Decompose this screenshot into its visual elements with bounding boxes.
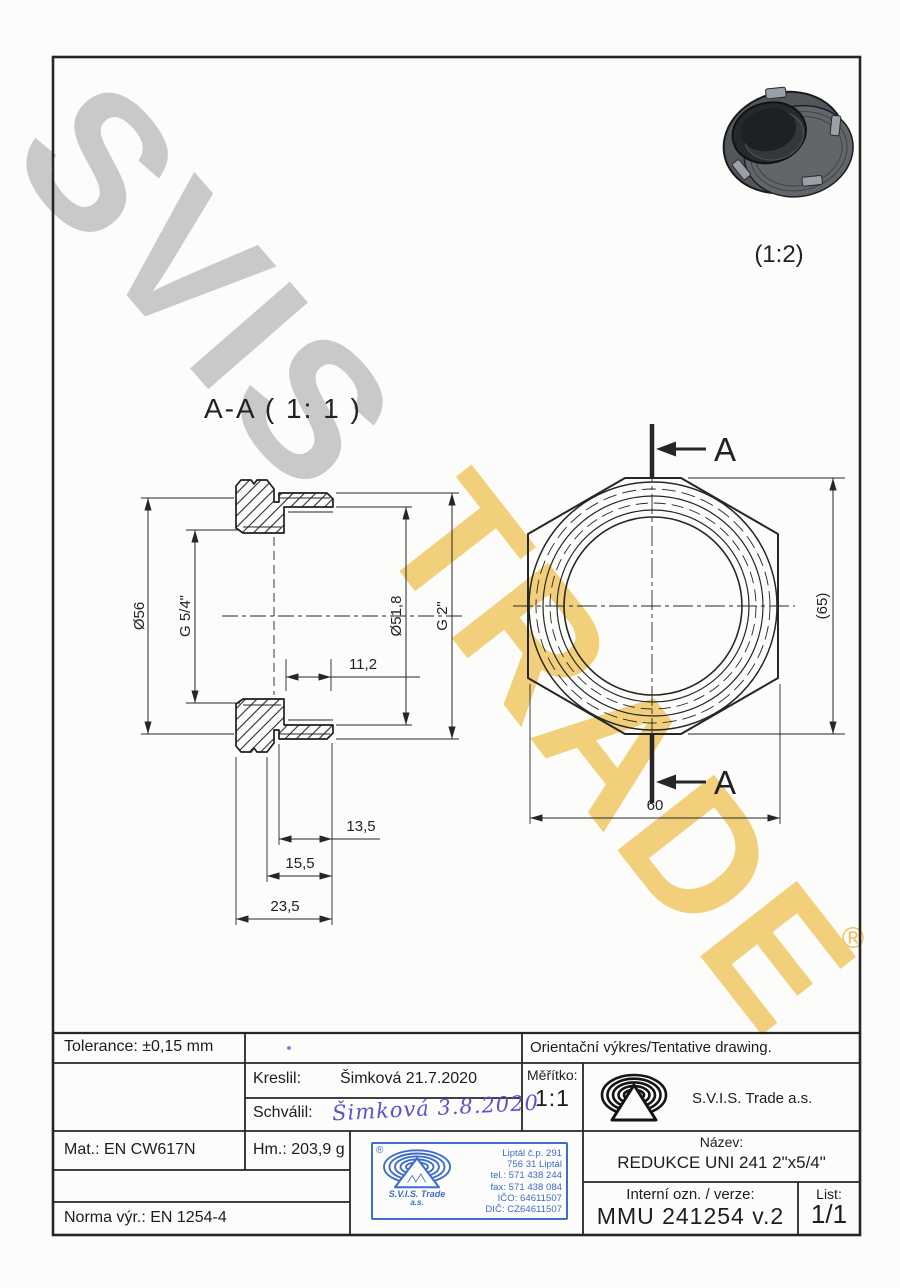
cut-arrow-top	[656, 442, 706, 457]
dim-step1: 13,5	[346, 818, 375, 835]
company-logo	[602, 1075, 666, 1120]
material-field: Mat.: EN CW617N	[64, 1141, 196, 1159]
dim-bore-diameter: Ø51,8	[388, 596, 405, 637]
stamp-address-line: IČO: 64611507	[461, 1193, 562, 1204]
company-stamp: ® S.V.I.S. Trade a.s. Liptál č.p. 291 75…	[371, 1142, 568, 1220]
photo-scale-note: (1:2)	[754, 241, 803, 268]
interni-label: Interní ozn. / verze:	[583, 1186, 798, 1203]
tolerance-field: Tolerance: ±0,15 mm	[64, 1038, 213, 1056]
sheet-frame	[53, 57, 860, 1235]
dim-thread-length: 11,2	[349, 656, 377, 673]
pen-dot-mark	[287, 1046, 291, 1050]
stamp-address-line: DIČ: CZ64611507	[461, 1204, 562, 1215]
tentative-drawing-note: Orientační výkres/Tentative drawing.	[530, 1039, 772, 1056]
section-title: A-A ( 1: 1 )	[204, 393, 362, 424]
dim-across-flats: 60	[647, 797, 664, 814]
part-photo	[711, 72, 863, 213]
dim-outer-diameter: Ø56	[131, 602, 148, 630]
stamp-company-line2: a.s.	[410, 1199, 423, 1207]
cut-label-bottom: A	[714, 764, 736, 801]
meritko-value: 1:1	[522, 1085, 583, 1112]
kreslil-value: Šimková 21.7.2020	[340, 1070, 477, 1088]
mass-field: Hm.: 203,9 g	[253, 1141, 345, 1159]
stamp-logo	[380, 1148, 454, 1192]
schvalil-label: Schválil:	[253, 1104, 313, 1122]
kreslil-label: Kreslil:	[253, 1070, 301, 1088]
cut-arrow-bottom	[656, 775, 706, 790]
nazev-value: REDUKCE UNI 241 2"x5/4"	[583, 1153, 860, 1173]
stamp-address-line: 756 31 Liptál	[461, 1159, 562, 1170]
stamp-address-line: fax: 571 438 084	[461, 1182, 562, 1193]
stamp-registered-icon: ®	[376, 1145, 383, 1156]
dim-total-length: 23,5	[270, 898, 299, 915]
stamp-address: Liptál č.p. 291 756 31 Liptál tel.: 571 …	[461, 1144, 566, 1218]
front-view: A A	[513, 424, 795, 803]
dim-thread-small: G 5/4"	[177, 595, 194, 637]
section-view	[222, 480, 462, 752]
cut-label-top: A	[714, 431, 736, 468]
meritko-label: Měřítko:	[527, 1067, 578, 1083]
company-name: S.V.I.S. Trade a.s.	[692, 1090, 812, 1107]
interni-value: MMU 241254 v.2	[583, 1203, 798, 1230]
section-dimensions: Ø56 G 5/4" Ø51,8 G 2" 11,2 13,5 15,5	[131, 493, 459, 925]
list-value: 1/1	[798, 1199, 860, 1230]
stamp-address-line: Liptál č.p. 291	[461, 1148, 562, 1159]
stamp-address-line: tel.: 571 438 244	[461, 1170, 562, 1181]
dim-thread-large: G 2"	[434, 601, 451, 631]
front-dimensions: (65) 60	[530, 478, 845, 824]
dim-across-corners: (65)	[814, 593, 831, 620]
nazev-label: Název:	[583, 1134, 860, 1150]
dim-step2: 15,5	[285, 855, 314, 872]
norm-field: Norma výr.: EN 1254-4	[64, 1209, 227, 1227]
